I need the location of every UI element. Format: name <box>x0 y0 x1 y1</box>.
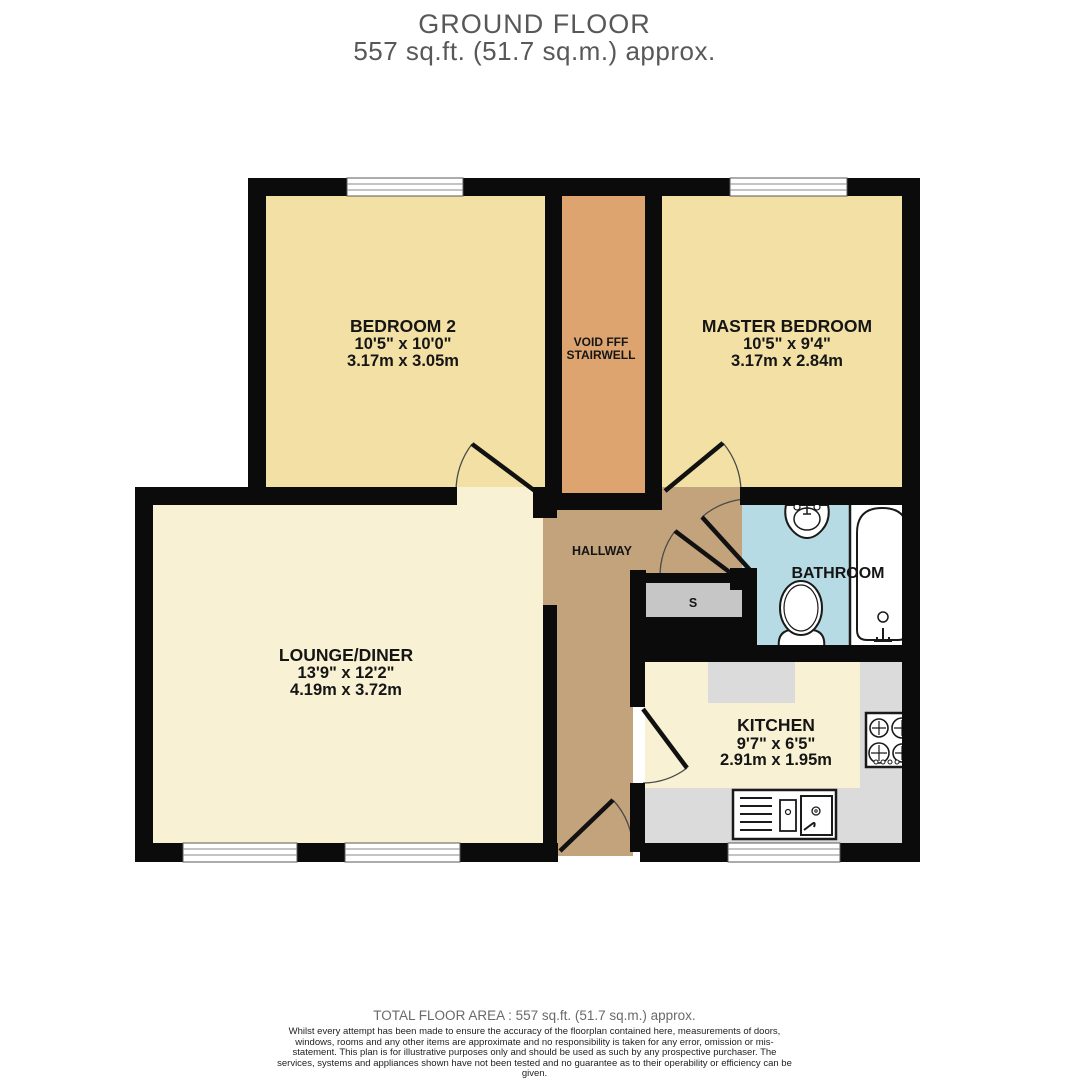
master-bedroom-dim-metric: 3.17m x 2.84m <box>731 352 843 370</box>
bedroom2-dim-imperial: 10'5" x 10'0" <box>355 335 452 353</box>
bedroom2-label: BEDROOM 2 <box>350 316 456 336</box>
plan-footer: TOTAL FLOOR AREA : 557 sq.ft. (51.7 sq.m… <box>0 1008 1069 1080</box>
storage-label: S <box>689 596 697 610</box>
lounge-dim-imperial: 13'9" x 12'2" <box>298 664 395 682</box>
window-kitchen <box>728 843 840 862</box>
toilet-icon <box>779 581 825 648</box>
total-floor-area: TOTAL FLOOR AREA : 557 sq.ft. (51.7 sq.m… <box>0 1008 1069 1023</box>
kitchen-dim-metric: 2.91m x 1.95m <box>720 751 832 769</box>
master-bedroom-label: MASTER BEDROOM <box>702 316 872 336</box>
window-master-bedroom <box>730 178 847 196</box>
stairwell-label-line2: STAIRWELL <box>567 348 636 362</box>
kitchen-sink-icon <box>733 790 836 839</box>
bathroom-label: BATHROOM <box>791 565 884 582</box>
hallway-label: HALLWAY <box>572 544 633 558</box>
window-bedroom2 <box>347 178 463 196</box>
kitchen-label: KITCHEN <box>737 715 815 735</box>
bedroom2-doorway-floor <box>457 487 533 507</box>
window-lounge-right <box>345 843 460 862</box>
disclaimer-text: Whilst every attempt has been made to en… <box>277 1027 793 1080</box>
floorplan-page: GROUND FLOOR 557 sq.ft. (51.7 sq.m.) app… <box>0 0 1069 1080</box>
counter-top-block <box>708 657 795 703</box>
window-lounge-left <box>183 843 297 862</box>
bedroom2-dim-metric: 3.17m x 3.05m <box>347 352 459 370</box>
lounge-label: LOUNGE/DINER <box>279 645 414 665</box>
hallway-floor-gap <box>543 518 557 605</box>
floorplan-drawing: BEDROOM 2 10'5" x 10'0" 3.17m x 3.05m MA… <box>0 0 1069 1080</box>
lounge-dim-metric: 4.19m x 3.72m <box>290 681 402 699</box>
master-bedroom-dim-imperial: 10'5" x 9'4" <box>743 335 831 353</box>
stairwell-label-line1: VOID FFF <box>574 335 629 349</box>
